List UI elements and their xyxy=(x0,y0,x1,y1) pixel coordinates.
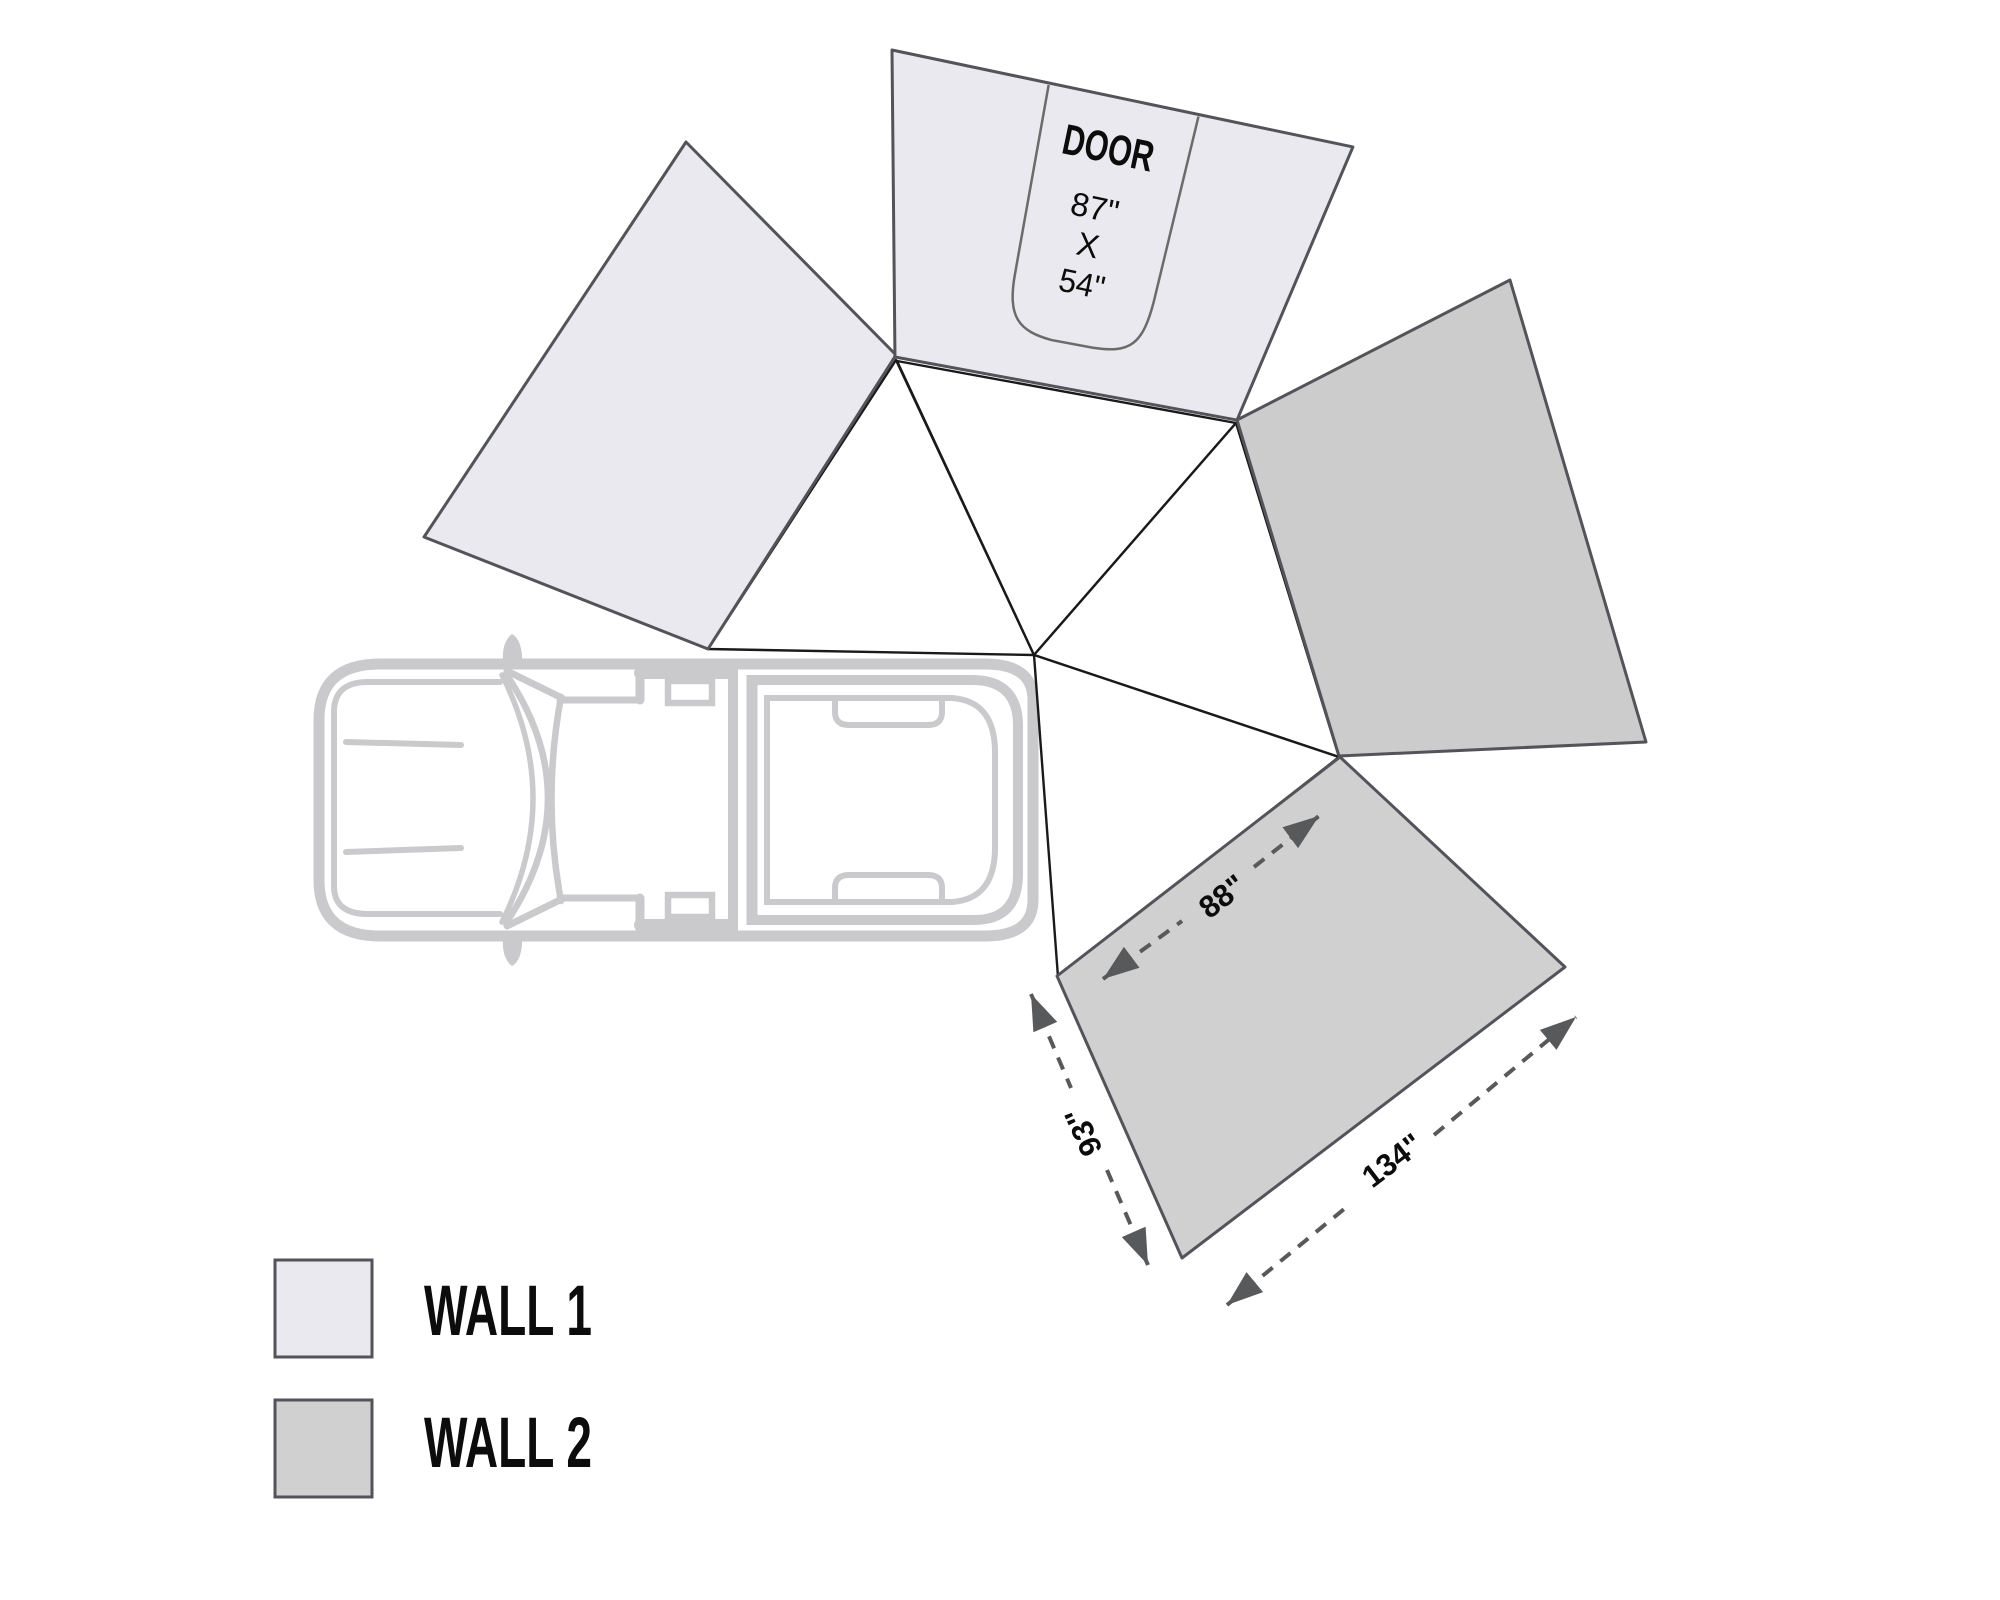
svg-text:WALL 2: WALL 2 xyxy=(424,1404,592,1483)
svg-text:134": 134" xyxy=(1355,1126,1429,1194)
svg-text:93": 93" xyxy=(1057,1102,1109,1161)
svg-text:WALL 1: WALL 1 xyxy=(424,1272,592,1351)
